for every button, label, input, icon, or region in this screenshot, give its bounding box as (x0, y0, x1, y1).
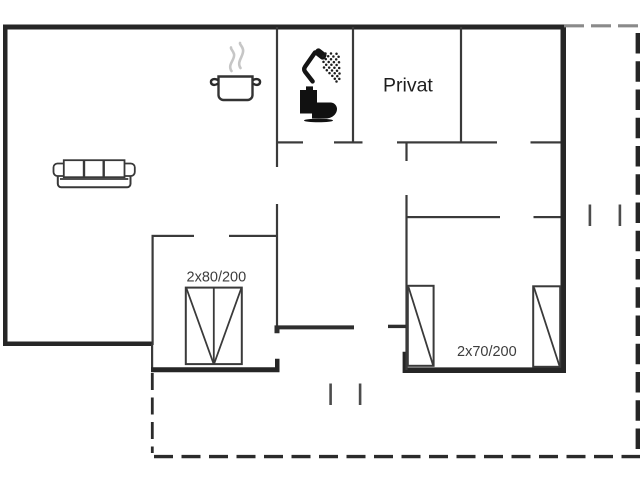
svg-text:2x70/200: 2x70/200 (457, 344, 517, 360)
svg-text:2x80/200: 2x80/200 (187, 270, 247, 286)
svg-text:Privat: Privat (383, 75, 433, 97)
